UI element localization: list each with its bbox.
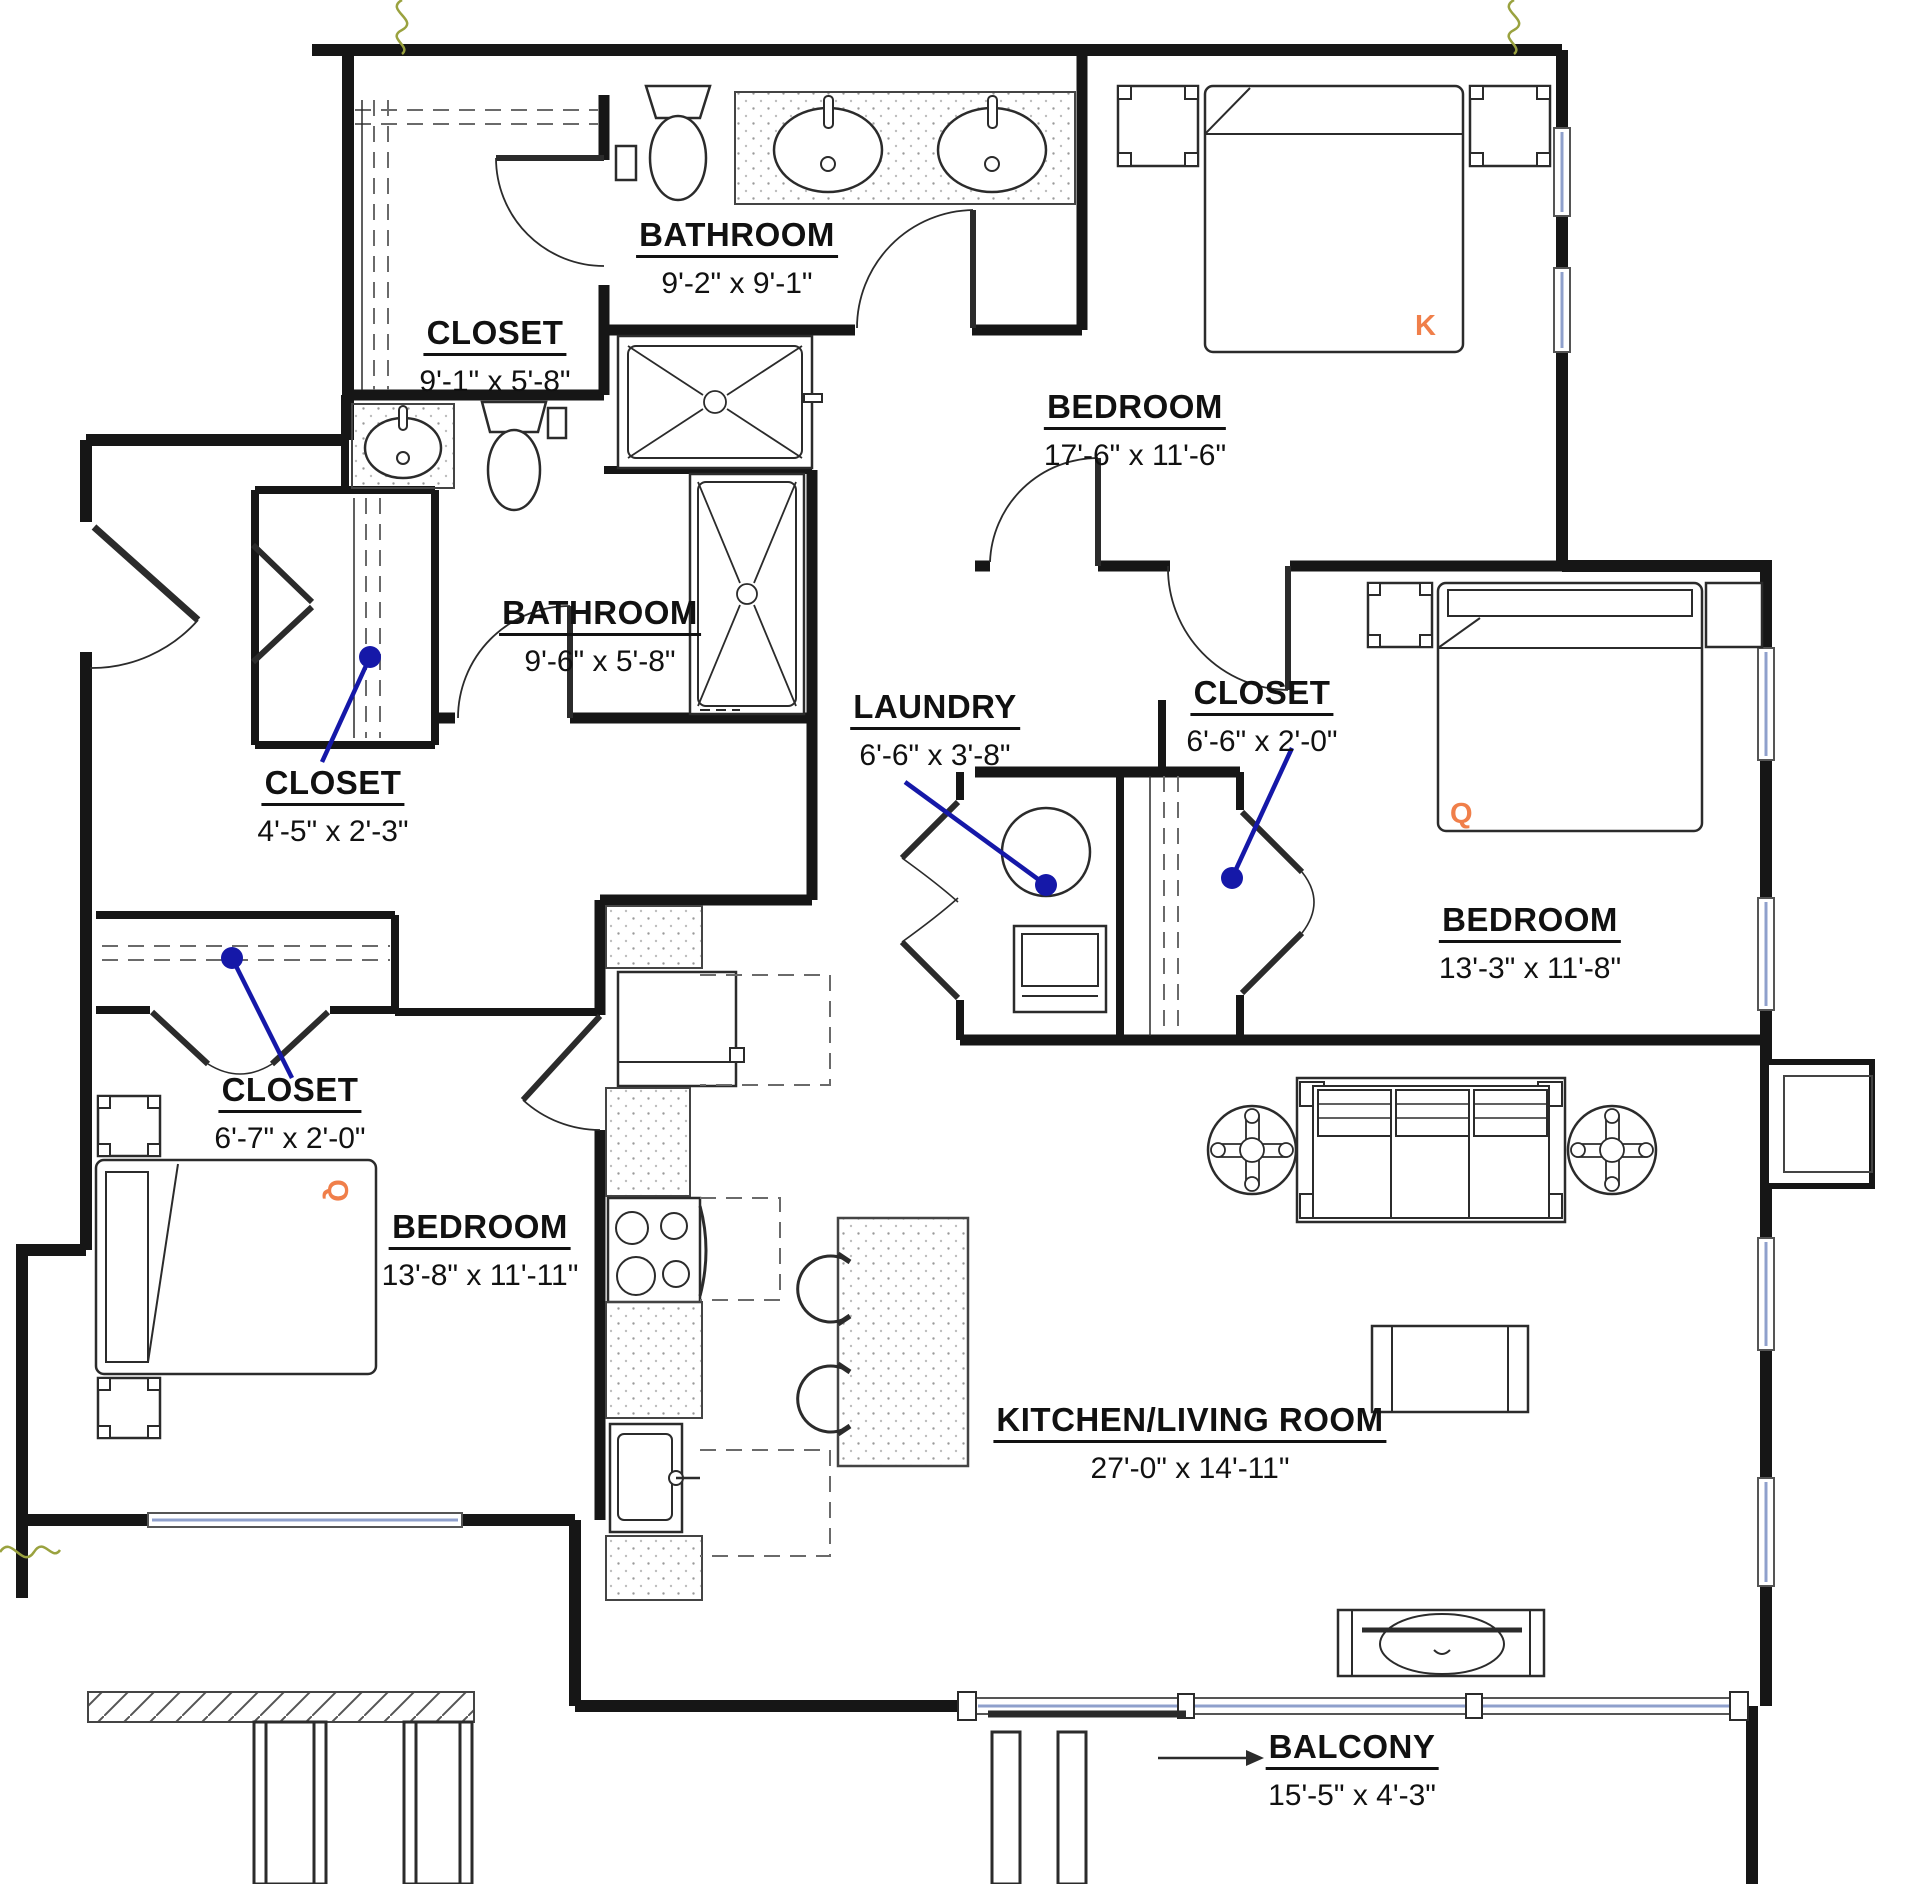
room-label-bedroom-top: BEDROOM 17'-6" x 11'-6" (1044, 390, 1226, 473)
room-label-laundry: LAUNDRY 6'-6" x 3'-8" (850, 690, 1020, 773)
room-name: BATHROOM (636, 218, 838, 258)
door-icon (990, 458, 1098, 566)
door-icon (1168, 566, 1288, 690)
double-door-icon (902, 802, 958, 998)
room-name: LAUNDRY (850, 690, 1020, 730)
balcony-left (88, 1692, 474, 1884)
room-name: BALCONY (1266, 1730, 1439, 1770)
counter (606, 1302, 702, 1418)
balcony-post-icon (992, 1732, 1086, 1884)
nightstand-icon (1118, 86, 1198, 166)
room-dims: 13'-8" x 11'-11" (382, 1259, 579, 1293)
bifold-door-icon (152, 1012, 328, 1074)
door-icon (523, 1016, 600, 1130)
fridge-icon (618, 972, 744, 1086)
room-dims: 6'-6" x 3'-8" (850, 739, 1020, 773)
kitchen-sink-icon (610, 1424, 700, 1532)
door-icon (496, 158, 604, 266)
window-icon (148, 1513, 462, 1527)
dryer-icon (1014, 926, 1106, 1012)
sofa-icon (1297, 1078, 1565, 1222)
room-name: BEDROOM (389, 1210, 571, 1250)
coffee-table-icon (1372, 1326, 1528, 1412)
room-dims: 9'-6" x 5'-8" (499, 645, 701, 679)
room-label-closet-top: CLOSET 9'-1" x 5'-8" (419, 316, 570, 399)
sofa-back-cushions (1318, 1090, 1547, 1136)
swivel-chair-icon (1208, 1106, 1296, 1194)
laundry-fixtures (1002, 808, 1106, 1012)
room-dims: 17'-6" x 11'-6" (1044, 439, 1226, 473)
counter (606, 1536, 702, 1600)
bifold-door-icon (1242, 812, 1314, 993)
room-label-closet-right: CLOSET 6'-6" x 2'-0" (1186, 676, 1337, 759)
nightstand-icon (1470, 86, 1550, 166)
room-name: CLOSET (262, 766, 405, 806)
entry-door-icon (90, 527, 198, 668)
dishwasher-dashed (700, 1198, 780, 1300)
room-label-bedroom-lower-left: BEDROOM 13'-8" x 11'-11" (382, 1210, 579, 1293)
window-icon (1758, 1238, 1774, 1350)
room-dims: 9'-1" x 5'-8" (419, 365, 570, 399)
room-dims: 9'-2" x 9'-1" (636, 267, 838, 301)
shower-icon (618, 336, 822, 468)
nightstand-icon (1706, 583, 1762, 647)
room-label-bathroom-middle: BATHROOM 9'-6" x 5'-8" (499, 596, 701, 679)
queen-bed-marker: Q (1450, 800, 1473, 829)
right-bump-out (1766, 1062, 1872, 1186)
kitchen-island (838, 1218, 968, 1466)
room-dims: 15'-5" x 4'-3" (1266, 1779, 1439, 1813)
nightstand-icon (98, 1378, 160, 1438)
toilet-icon (482, 402, 566, 510)
room-label-balcony: BALCONY 15'-5" x 4'-3" (1266, 1730, 1439, 1813)
bifold-door-icon (253, 545, 312, 662)
room-label-closet-entry: CLOSET 4'-5" x 2'-3" (257, 766, 408, 849)
cabinet-dashed (700, 1450, 830, 1556)
tv-console-icon (1338, 1610, 1544, 1676)
room-dims: 27'-0" x 14'-11" (993, 1452, 1386, 1486)
window-icon (1758, 898, 1774, 1010)
room-dims: 4'-5" x 2'-3" (257, 815, 408, 849)
door-slide-arrow (1158, 1750, 1264, 1766)
queen-bed-marker: Q (322, 1179, 351, 1202)
room-label-bedroom-right: BEDROOM 13'-3" x 11'-8" (1439, 903, 1621, 986)
room-name: BATHROOM (499, 596, 701, 636)
room-label-closet-lower-left: CLOSET 6'-7" x 2'-0" (214, 1073, 365, 1156)
window-icon (1554, 268, 1570, 352)
window-icon (1554, 128, 1570, 216)
room-label-bathroom-top: BATHROOM 9'-2" x 9'-1" (636, 218, 838, 301)
counter (606, 1088, 690, 1196)
kitchen-fixtures (606, 906, 968, 1600)
king-bed-marker: K (1415, 312, 1436, 341)
room-name: KITCHEN/LIVING ROOM (993, 1403, 1386, 1443)
toilet-icon (616, 86, 710, 200)
window-icon (1758, 1478, 1774, 1586)
room-name: BEDROOM (1044, 390, 1226, 430)
room-name: CLOSET (219, 1073, 362, 1113)
swivel-chair-icon (1568, 1106, 1656, 1194)
room-dims: 13'-3" x 11'-8" (1439, 952, 1621, 986)
door-icon (857, 210, 973, 328)
queen-bed-icon (1438, 583, 1702, 831)
floor-plan: BATHROOM 9'-2" x 9'-1" CLOSET 9'-1" x 5'… (0, 0, 1920, 1884)
room-name: CLOSET (424, 316, 567, 356)
stove-icon (608, 1198, 706, 1302)
room-name: CLOSET (1191, 676, 1334, 716)
room-dims: 6'-7" x 2'-0" (214, 1122, 365, 1156)
window-icon (1758, 648, 1774, 760)
counter (606, 906, 702, 968)
floor-plan-drawing (0, 0, 1920, 1884)
shower-icon (690, 474, 804, 714)
room-label-kitchen-living: KITCHEN/LIVING ROOM 27'-0" x 14'-11" (993, 1403, 1386, 1486)
nightstand-icon (1368, 583, 1432, 647)
room-dims: 6'-6" x 2'-0" (1186, 725, 1337, 759)
nightstand-icon (98, 1096, 160, 1156)
room-name: BEDROOM (1439, 903, 1621, 943)
balcony-post-icon (254, 1722, 472, 1884)
